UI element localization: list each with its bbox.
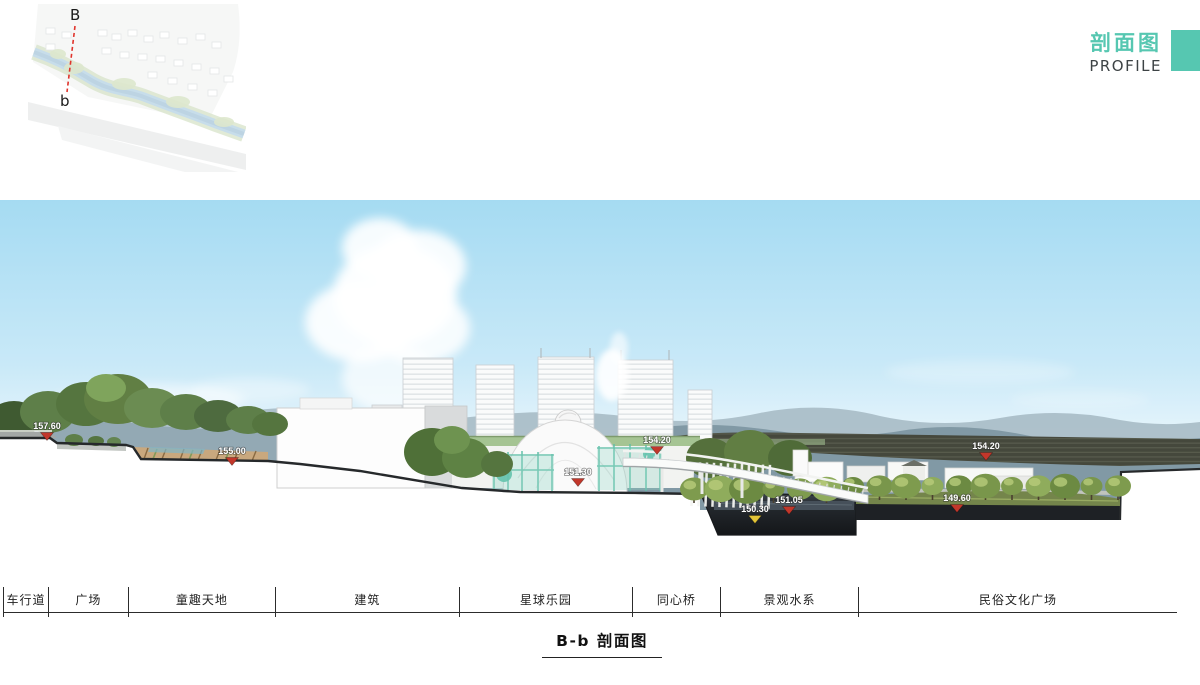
- page-title: 剖面图: [1089, 32, 1162, 55]
- section-rendering: 157.60155.00151.30154.20150.30151.05149.…: [0, 200, 1200, 585]
- svg-text:154.20: 154.20: [643, 435, 671, 445]
- section-point-b: b: [60, 92, 70, 110]
- profile-scene: 157.60155.00151.30154.20150.30151.05149.…: [0, 200, 1200, 585]
- section-point-B: B: [70, 6, 80, 24]
- page-header: 剖面图 PROFILE: [1089, 30, 1200, 75]
- locator-map: B b: [28, 2, 246, 172]
- locator-map-art: B b: [28, 2, 246, 172]
- drawing-caption: B-b 剖面图: [0, 629, 1200, 658]
- section-baseline: [3, 612, 1177, 613]
- caption-text: B-b 剖面图: [542, 629, 662, 658]
- svg-text:149.60: 149.60: [943, 493, 971, 503]
- svg-text:150.30: 150.30: [741, 504, 769, 514]
- svg-text:155.00: 155.00: [218, 446, 246, 456]
- slide: { "header": { "title_cn": "剖面图", "title_…: [0, 0, 1200, 685]
- svg-text:154.20: 154.20: [972, 441, 1000, 451]
- section-label-bar: 车行道广场童趣天地建筑星球乐园同心桥景观水系民俗文化广场: [3, 587, 1177, 617]
- svg-text:151.30: 151.30: [564, 467, 592, 477]
- svg-text:157.60: 157.60: [33, 421, 61, 431]
- svg-text:151.05: 151.05: [775, 495, 803, 505]
- accent-square: [1171, 30, 1200, 71]
- page-subtitle: PROFILE: [1089, 57, 1162, 75]
